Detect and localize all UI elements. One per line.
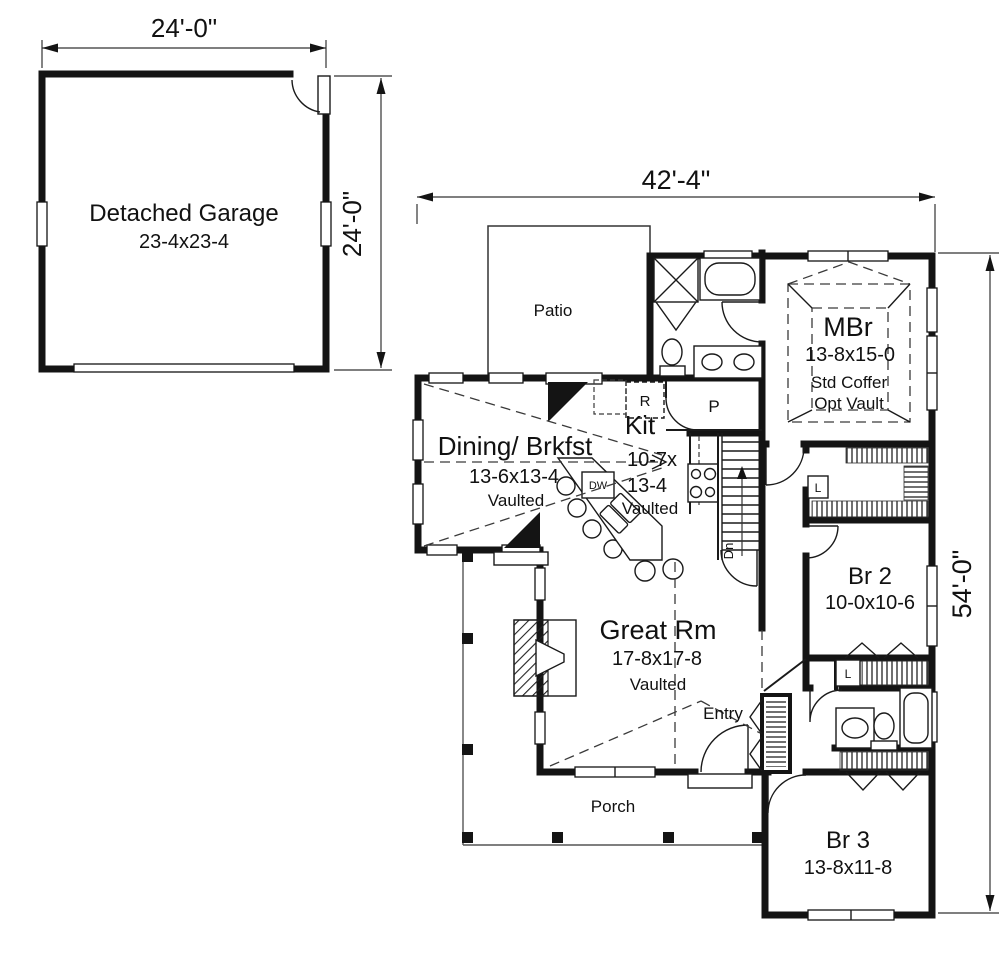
mbr-hall-door	[766, 447, 804, 485]
br2-label: Br 2	[848, 563, 892, 590]
great-room-label: Great Rm	[599, 615, 716, 645]
mbr-ceiling1: Std Coffer	[811, 373, 888, 392]
toilet	[874, 713, 894, 739]
dining-ceiling: Vaulted	[488, 491, 544, 510]
br2-door	[806, 526, 838, 558]
stool	[557, 477, 575, 495]
entry-label: Entry	[703, 704, 743, 723]
kitchen-size1: 10-7x	[627, 449, 677, 471]
dining-stoop	[494, 552, 548, 565]
stool	[583, 520, 601, 538]
entry-closet	[750, 695, 790, 772]
mbr-label: MBr	[823, 312, 873, 342]
br3-size: 13-8x11-8	[804, 857, 893, 879]
porch-label: Porch	[591, 797, 635, 816]
stairs-down-label: Dn	[721, 543, 736, 560]
hall-bath	[836, 688, 932, 750]
garage-door-opening	[74, 364, 294, 372]
patio-label: Patio	[534, 301, 573, 320]
dining-size: 13-6x13-4	[469, 466, 559, 488]
mbr-closet: L	[808, 448, 928, 517]
dining-label: Dining/ Brkfst	[438, 431, 593, 461]
floor-plan-drawing: Detached Garage 23-4x23-4 24'-0" 24'-0" …	[0, 0, 1000, 961]
master-bath	[654, 258, 762, 378]
garage-size: 23-4x23-4	[139, 231, 229, 253]
pantry-label: P	[708, 397, 719, 416]
house-depth-dim: 54'-0"	[947, 550, 977, 619]
room-labels: MBr 13-8x15-0 Std Coffer Opt Vault Kit 1…	[438, 312, 915, 879]
br2-closet: L	[836, 643, 928, 688]
master-bath-door	[722, 302, 762, 342]
patio: Patio	[488, 226, 650, 378]
dining-side-door	[504, 512, 540, 548]
linen-label: L	[845, 667, 852, 681]
stool	[635, 561, 655, 581]
upper-cabinets	[594, 380, 626, 414]
garage-depth-dim: 24'-0"	[337, 191, 367, 257]
front-stoop	[688, 774, 752, 788]
garage-window-right	[321, 202, 331, 246]
house-width-dim: 42'-4"	[642, 165, 711, 195]
mbr-ceiling2: Opt Vault	[814, 394, 884, 413]
garage-window-left	[37, 202, 47, 246]
porch: Porch	[462, 551, 763, 845]
garage-service-door	[318, 76, 330, 114]
kitchen-label: Kit	[625, 410, 656, 440]
entry-angled-wall	[764, 659, 806, 691]
stairs-arrow	[737, 466, 747, 479]
master-toilet	[662, 339, 682, 365]
great-room-size: 17-8x17-8	[612, 648, 702, 670]
linen-label: L	[815, 481, 822, 495]
garage: Detached Garage 23-4x23-4	[37, 74, 331, 372]
floor-plan: Detached Garage 23-4x23-4 24'-0" 24'-0" …	[0, 0, 1000, 961]
mbr-size: 13-8x15-0	[805, 344, 895, 366]
garage-width-dim: 24'-0"	[151, 13, 217, 43]
stool	[663, 559, 683, 579]
fireplace	[514, 620, 576, 696]
kitchen-ceiling: Vaulted	[622, 499, 678, 518]
patio-door	[548, 382, 588, 422]
kitchen-size2: 13-4	[627, 475, 667, 497]
great-room-ceiling: Vaulted	[630, 675, 686, 694]
garage-name: Detached Garage	[89, 200, 278, 227]
front-door	[701, 725, 748, 772]
br3-door	[768, 775, 806, 813]
dishwasher-label: DW	[589, 480, 608, 492]
garage-door-swing	[292, 80, 320, 112]
stairs: Dn	[718, 433, 760, 560]
pantry-door	[666, 398, 698, 430]
br2-size: 10-0x10-6	[825, 592, 915, 614]
refrigerator-label: R	[640, 393, 651, 410]
br3-label: Br 3	[826, 827, 870, 854]
shower-door	[656, 302, 696, 330]
stool	[568, 499, 586, 517]
